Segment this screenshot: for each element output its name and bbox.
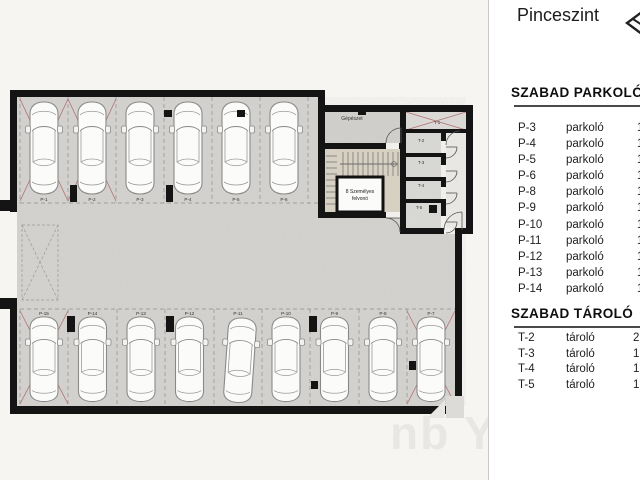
unit-extra: 1: [633, 379, 640, 391]
storage-label: T-5: [416, 205, 423, 210]
unit-type: tároló: [566, 348, 595, 360]
storage-section-heading: SZABAD TÁROLÓ: [511, 306, 633, 321]
parking-row: P-4parkoló1: [489, 138, 640, 154]
car-top-view: [26, 102, 63, 194]
parking-section-heading: SZABAD PARKOLÓ: [511, 85, 640, 100]
parking-row: P-8parkoló1: [489, 186, 640, 202]
stall-label: P-3: [136, 197, 144, 202]
storage-label: T-3: [418, 160, 425, 165]
unit-type: parkoló: [566, 122, 604, 134]
unit-id: P-6: [518, 170, 536, 182]
car-top-view: [122, 102, 159, 194]
stall-label: P-4: [184, 197, 192, 202]
parking-row: P-12parkoló1: [489, 251, 640, 267]
storage-label: T-1: [434, 120, 441, 125]
stall-label: P-7: [427, 311, 435, 316]
unit-type: parkoló: [566, 186, 604, 198]
car-top-view: [170, 102, 207, 194]
unit-id: P-5: [518, 154, 536, 166]
storage-label: T-4: [418, 183, 425, 188]
page-title: Pinceszint: [517, 5, 599, 26]
storage-list: T-2tároló2 T-3tároló1 T-4tároló1 T-5táro…: [489, 332, 640, 394]
parking-row: P-3parkoló1: [489, 122, 640, 138]
elevator-label-line2: felvonó: [352, 196, 368, 202]
stall-label: P-8: [379, 311, 387, 316]
storage-label: T-2: [418, 138, 425, 143]
stall-label: P-12: [185, 311, 195, 316]
unit-type: parkoló: [566, 283, 604, 295]
unit-id: P-14: [518, 283, 542, 295]
parking-list: P-3parkoló1 P-4parkoló1 P-5parkoló1 P-6p…: [489, 122, 640, 299]
unit-id: T-2: [518, 332, 535, 344]
unit-type: parkoló: [566, 170, 604, 182]
unit-type: parkoló: [566, 251, 604, 263]
stall-label: P-14: [88, 311, 98, 316]
unit-extra: 2: [633, 332, 640, 344]
unit-extra: 1: [633, 348, 640, 360]
stall-label: P-11: [233, 311, 243, 316]
unit-type: parkoló: [566, 138, 604, 150]
car-top-view: [74, 102, 111, 194]
stall-label: P-2: [88, 197, 96, 202]
parked-cars-bottom-row: [26, 317, 450, 404]
parking-row: P-6parkoló1: [489, 170, 640, 186]
unit-type: parkoló: [566, 202, 604, 214]
unit-extra: 1: [633, 363, 640, 375]
stall-label: P-15: [39, 311, 49, 316]
unit-type: parkoló: [566, 154, 604, 166]
car-top-view: [266, 102, 303, 194]
parking-row: P-5parkoló1: [489, 154, 640, 170]
unit-type: tároló: [566, 379, 595, 391]
floorplan-drawing: Gépészet 8 Személyes felvonó P-1 P-2 P-3…: [0, 0, 490, 480]
divider: [514, 326, 640, 328]
stall-label: P-13: [136, 311, 146, 316]
north-arrow-icon: [617, 6, 640, 40]
unit-id: P-10: [518, 219, 542, 231]
storage-row: T-4tároló1: [489, 363, 640, 379]
unit-type: tároló: [566, 332, 595, 344]
unit-id: P-3: [518, 122, 536, 134]
floorplan-page: Gépészet 8 Személyes felvonó P-1 P-2 P-3…: [0, 0, 640, 480]
car-top-view: [171, 317, 208, 402]
unit-type: tároló: [566, 363, 595, 375]
unit-id: P-11: [518, 235, 541, 247]
unit-id: T-5: [518, 379, 535, 391]
parking-row: P-14parkoló1: [489, 283, 640, 299]
unit-id: P-8: [518, 186, 536, 198]
storage-row: T-2tároló2: [489, 332, 640, 348]
stall-label: P-9: [331, 311, 339, 316]
stall-label: P-6: [280, 197, 288, 202]
storage-row: T-3tároló1: [489, 348, 640, 364]
parking-row: P-9parkoló1: [489, 202, 640, 218]
unit-id: P-13: [518, 267, 542, 279]
unit-type: parkoló: [566, 235, 604, 247]
car-top-view: [26, 317, 63, 402]
divider: [514, 105, 640, 107]
car-top-view: [123, 317, 160, 402]
unit-id: P-12: [518, 251, 542, 263]
parking-row: P-10parkoló1: [489, 219, 640, 235]
mechanical-room-label: Gépészet: [341, 116, 363, 122]
car-top-view: [74, 317, 111, 402]
unit-id: P-9: [518, 202, 536, 214]
parking-row: P-11parkoló1: [489, 235, 640, 251]
car-top-view: [413, 317, 450, 402]
car-top-view: [316, 317, 353, 402]
stall-label: P-10: [281, 311, 291, 316]
unit-type: parkoló: [566, 219, 604, 231]
parking-row: P-13parkoló1: [489, 267, 640, 283]
storage-row: T-5tároló1: [489, 379, 640, 395]
svg-text:nb Y: nb Y: [390, 407, 490, 459]
unit-id: T-3: [518, 348, 535, 360]
stall-label: P-1: [40, 197, 48, 202]
car-top-view: [218, 102, 255, 194]
car-top-view: [365, 317, 402, 402]
unit-type: parkoló: [566, 267, 604, 279]
unit-id: P-4: [518, 138, 536, 150]
availability-sidebar: Pinceszint SZABAD PARKOLÓ P-3parkoló1 P-…: [488, 0, 640, 480]
stall-label: P-5: [232, 197, 240, 202]
elevator-label-line1: 8 Személyes: [346, 189, 375, 195]
unit-id: T-4: [518, 363, 535, 375]
car-top-view: [268, 317, 305, 402]
